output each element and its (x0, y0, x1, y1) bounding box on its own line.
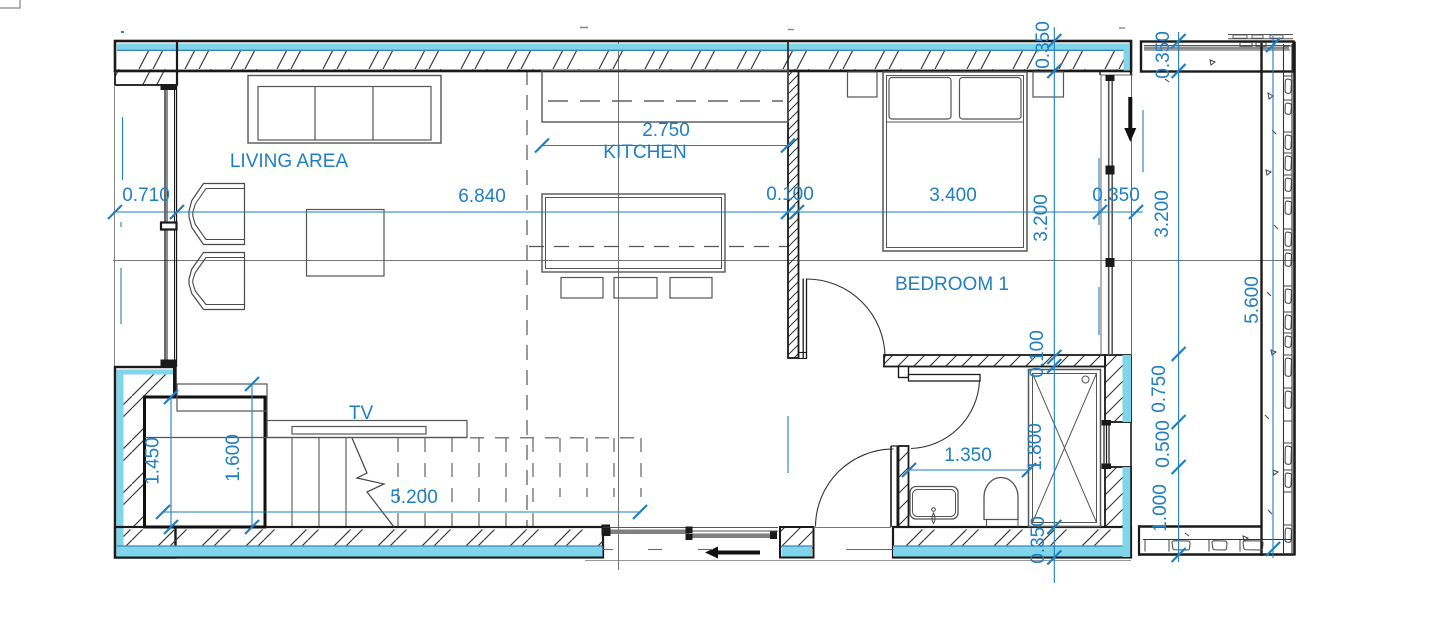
svg-text:0.350: 0.350 (1092, 185, 1140, 206)
svg-text:0.100: 0.100 (1027, 330, 1048, 378)
svg-text:1.600: 1.600 (223, 434, 244, 482)
svg-text:2.750: 2.750 (642, 120, 690, 141)
svg-text:0.750: 0.750 (1149, 365, 1170, 413)
svg-text:5.200: 5.200 (390, 487, 438, 508)
svg-text:3.400: 3.400 (929, 185, 977, 206)
svg-text:1.450: 1.450 (143, 437, 164, 485)
svg-text:0.710: 0.710 (122, 185, 170, 206)
svg-text:0.100: 0.100 (766, 184, 814, 205)
svg-text:5.600: 5.600 (1242, 276, 1263, 324)
svg-text:LIVING AREA: LIVING AREA (230, 151, 349, 172)
svg-text:3.200: 3.200 (1152, 190, 1173, 238)
svg-text:0.350: 0.350 (1153, 31, 1174, 79)
svg-text:1.800: 1.800 (1025, 423, 1046, 471)
svg-text:0.350: 0.350 (1033, 21, 1054, 69)
svg-text:0.500: 0.500 (1153, 420, 1174, 468)
svg-text:6.840: 6.840 (458, 186, 506, 207)
svg-text:1.000: 1.000 (1150, 484, 1171, 532)
svg-text:BEDROOM 1: BEDROOM 1 (895, 274, 1009, 295)
svg-text:3.200: 3.200 (1031, 194, 1052, 242)
svg-text:0.350: 0.350 (1028, 516, 1049, 564)
svg-text:1.350: 1.350 (944, 445, 992, 466)
